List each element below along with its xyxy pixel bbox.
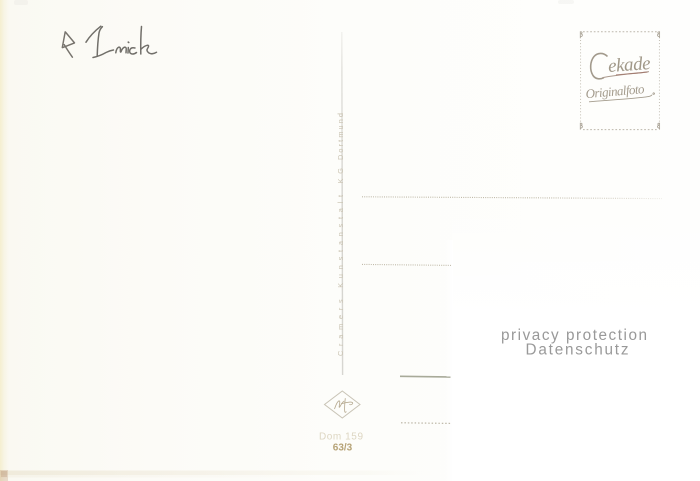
svg-text:Dom 159: Dom 159 xyxy=(319,432,363,443)
svg-text:Dortmund: Dortmund xyxy=(336,113,345,160)
svg-text:63/3: 63/3 xyxy=(333,443,353,454)
svg-text:Cramers Kunstanstalt KG: Cramers Kunstanstalt KG xyxy=(336,168,345,356)
